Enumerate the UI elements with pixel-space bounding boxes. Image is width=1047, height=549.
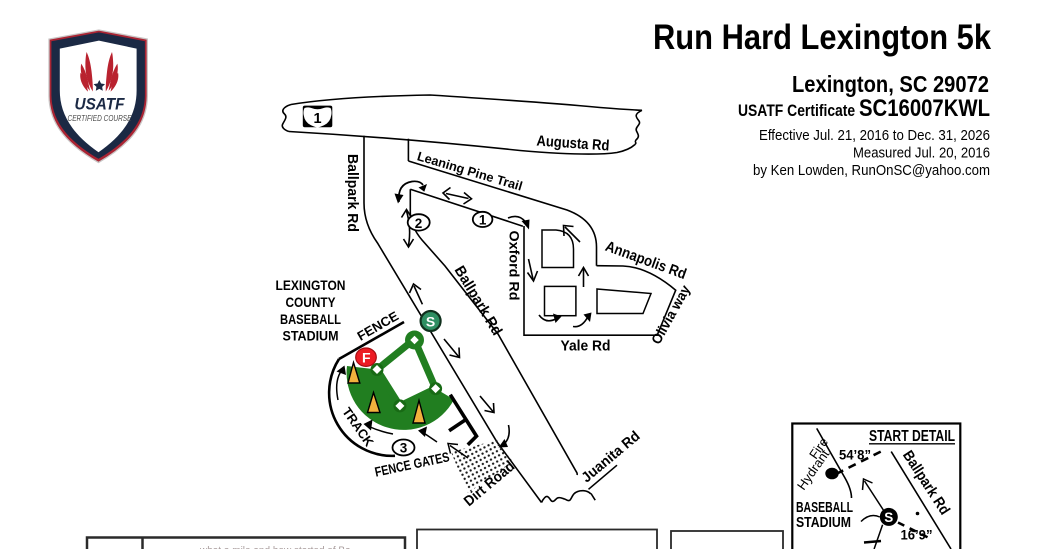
svg-text:what a mile and how started of: what a mile and how started of Ba [199,546,351,549]
svg-text:STADIUM: STADIUM [796,515,851,531]
svg-text:S: S [426,314,435,330]
svg-text:1: 1 [314,111,322,127]
svg-text:3: 3 [400,441,408,456]
svg-text:1: 1 [479,212,487,227]
svg-text:S: S [884,510,893,525]
svg-text:Measured Jul. 20, 2016: Measured Jul. 20, 2016 [853,145,990,162]
svg-text:START DETAIL: START DETAIL [869,428,955,445]
svg-text:2: 2 [415,216,423,231]
svg-text:Ballpark Rd: Ballpark Rd [344,154,361,232]
svg-text:Oxford Rd: Oxford Rd [507,231,523,301]
svg-text:Effective Jul. 21, 2016 to Dec: Effective Jul. 21, 2016 to Dec. 31, 2026 [759,127,990,144]
svg-text:LEXINGTON: LEXINGTON [276,278,346,293]
svg-text:CERTIFIED COURSE: CERTIFIED COURSE [68,113,132,123]
svg-text:F: F [362,350,371,366]
svg-text:by Ken Lowden, RunOnSC@yahoo.c: by Ken Lowden, RunOnSC@yahoo.com [753,162,990,179]
svg-text:COUNTY: COUNTY [286,295,336,310]
svg-text:STADIUM: STADIUM [283,329,339,344]
svg-text:16’9”: 16’9” [901,527,933,543]
svg-text:54’8”: 54’8” [839,447,871,463]
svg-text:Lexington, SC 29072: Lexington, SC 29072 [792,71,989,97]
svg-text:Yale Rd: Yale Rd [561,339,611,355]
svg-text:Run Hard Lexington 5k: Run Hard Lexington 5k [653,18,991,57]
svg-text:USATF: USATF [75,95,126,114]
svg-text:BASEBALL: BASEBALL [280,312,341,327]
svg-text:BASEBALL: BASEBALL [796,500,853,516]
